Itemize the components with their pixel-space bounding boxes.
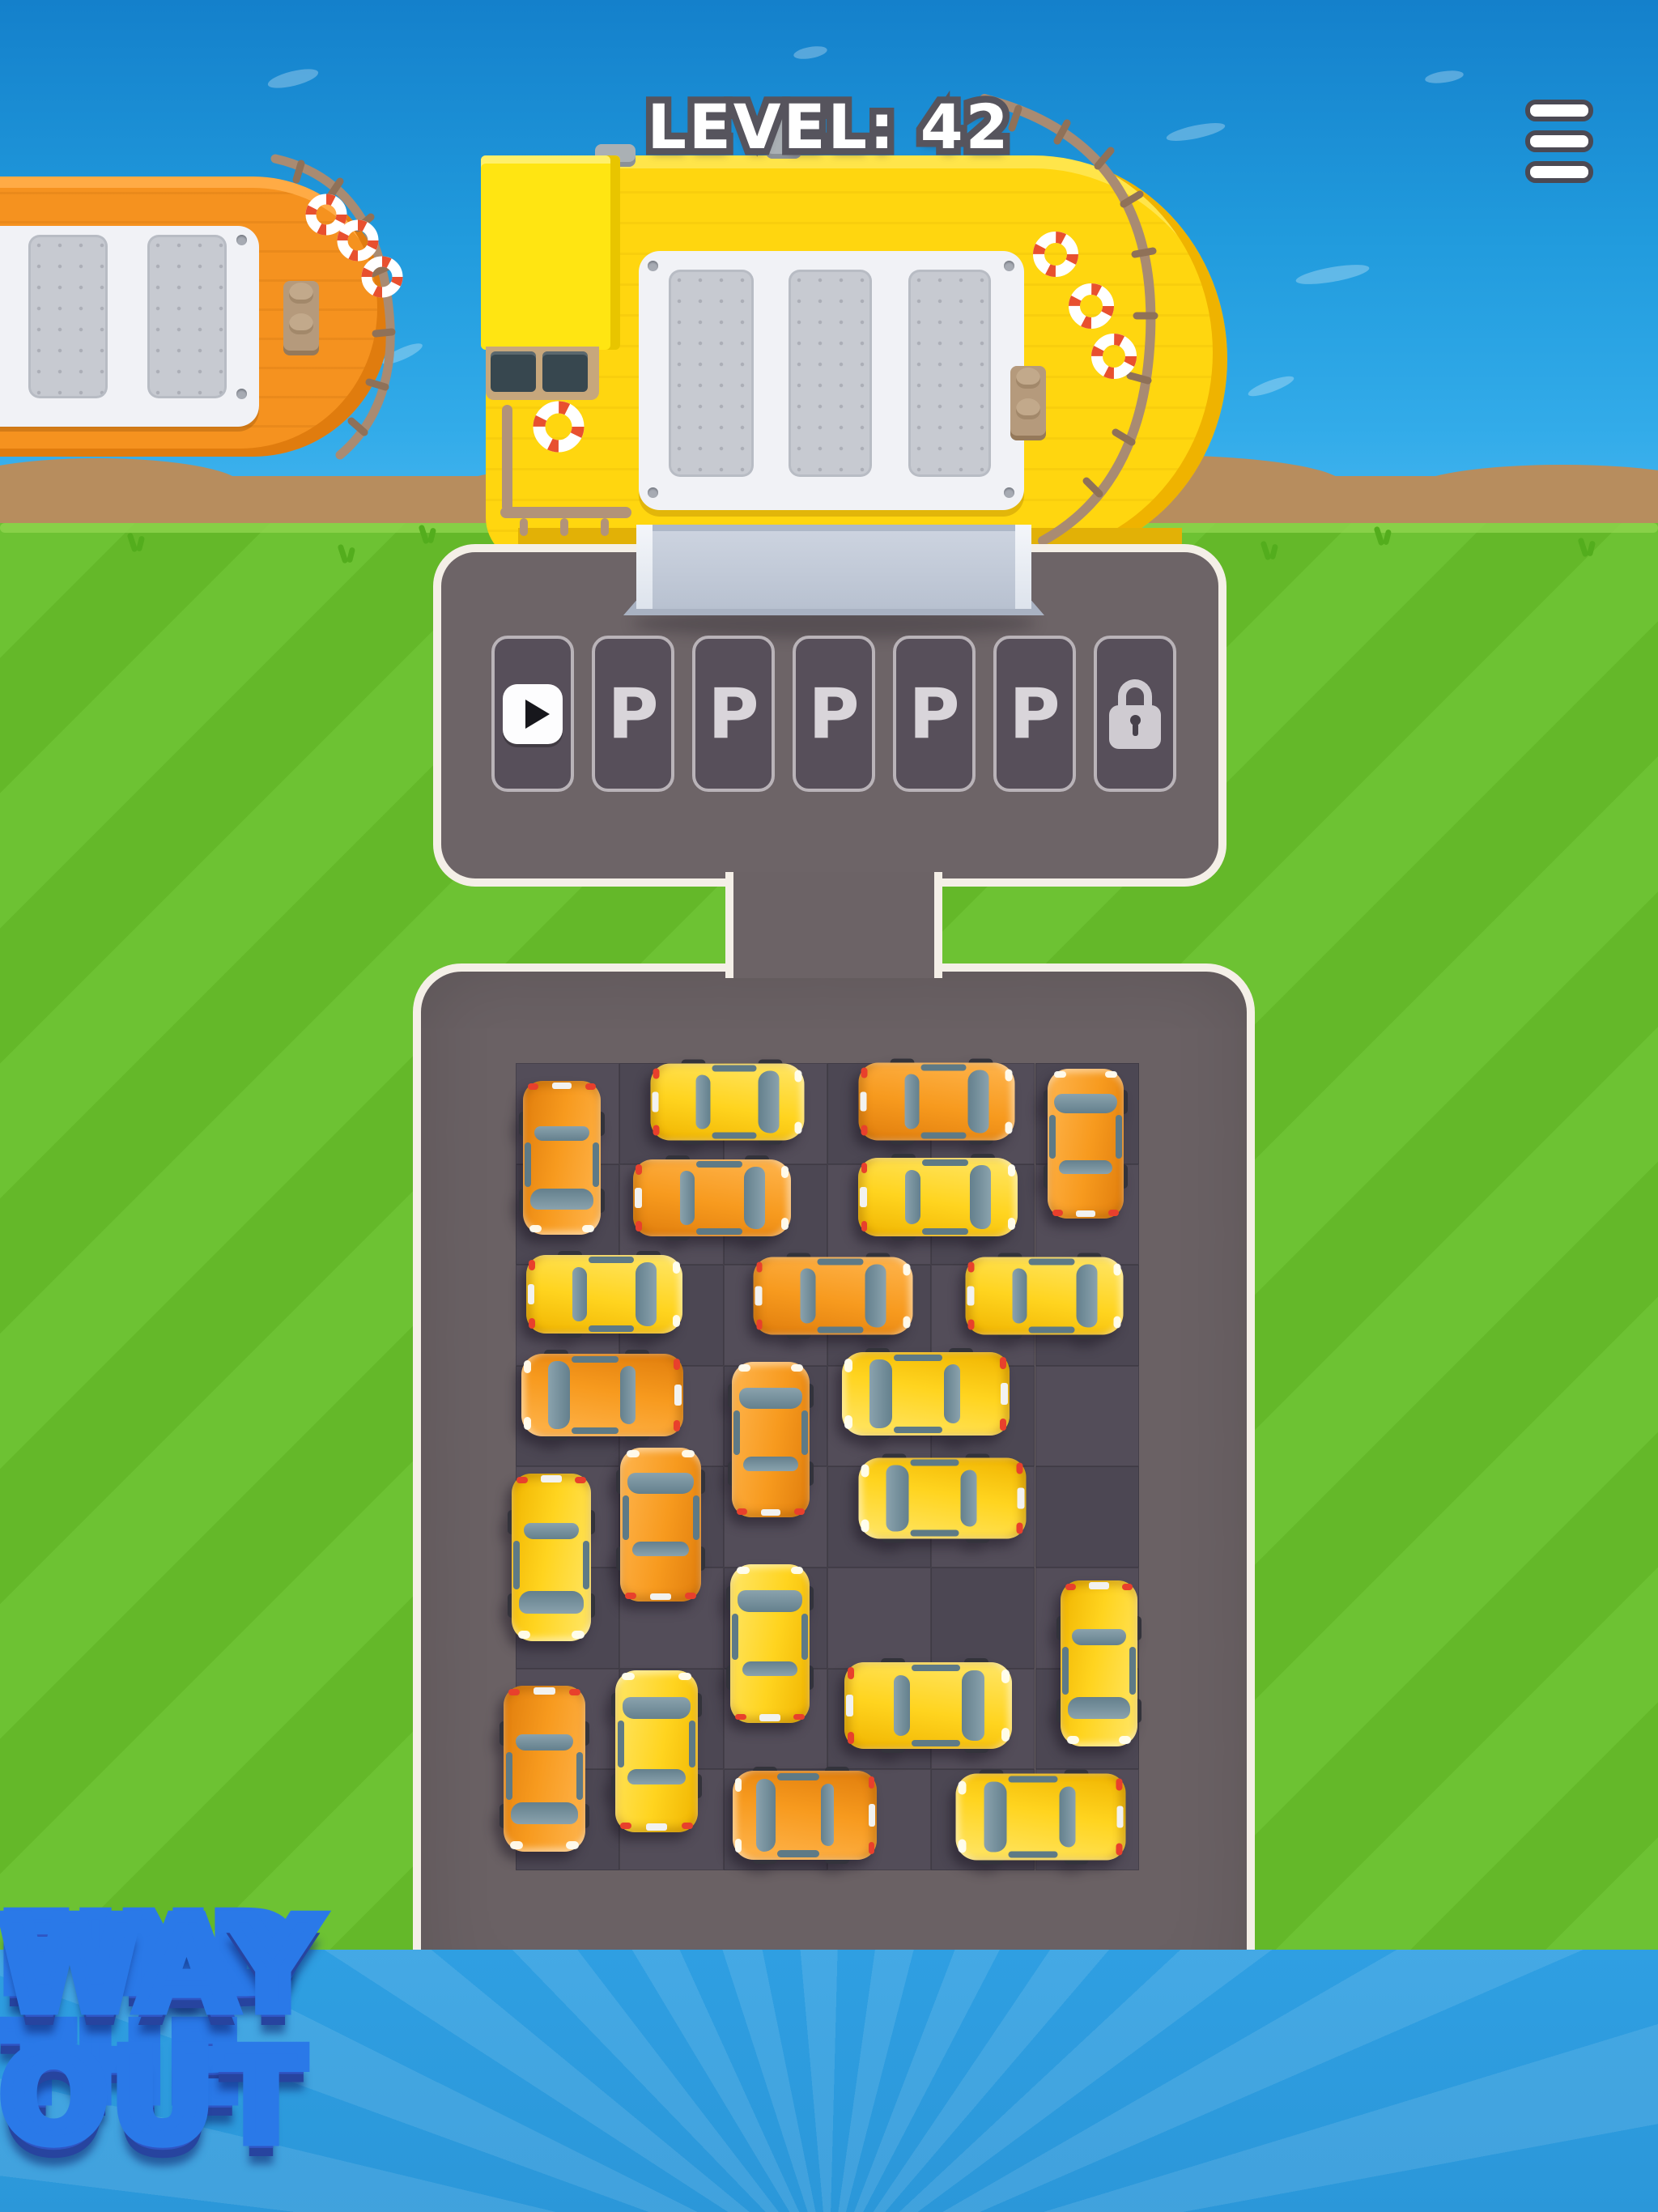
car-body[interactable] — [615, 1670, 698, 1832]
car-orange-right[interactable] — [858, 1062, 1014, 1140]
car-yellow-down[interactable] — [1061, 1580, 1137, 1746]
slot-label: P — [607, 679, 658, 749]
parking-tile — [931, 1568, 1035, 1669]
car-yellow-right[interactable] — [650, 1063, 804, 1140]
car-body[interactable] — [523, 1081, 601, 1235]
car-body[interactable] — [732, 1362, 810, 1517]
car-body[interactable] — [730, 1564, 810, 1723]
car-body[interactable] — [1061, 1580, 1137, 1746]
slot-label: P — [1009, 679, 1060, 749]
game-screen: PPPPP LEVEL: 42 LEVEL: 42 FIND THE FIND … — [0, 0, 1658, 2212]
parking-slot-p[interactable]: P — [793, 636, 875, 792]
car-orange-up[interactable] — [1048, 1069, 1124, 1219]
car-body[interactable] — [521, 1354, 683, 1436]
car-body[interactable] — [504, 1686, 585, 1852]
car-yellow-right[interactable] — [858, 1158, 1018, 1236]
car-yellow-up[interactable] — [615, 1670, 698, 1832]
parking-slot-p[interactable]: P — [893, 636, 976, 792]
lock-icon — [1109, 679, 1161, 749]
parking-tile — [827, 1568, 931, 1669]
car-body[interactable] — [733, 1771, 877, 1860]
car-orange-left[interactable] — [521, 1354, 683, 1436]
car-body[interactable] — [1048, 1069, 1124, 1219]
car-body[interactable] — [842, 1352, 1010, 1436]
car-body[interactable] — [650, 1063, 804, 1140]
slot-label: P — [708, 679, 759, 749]
slot-label: P — [808, 679, 859, 749]
parking-slot-play[interactable] — [491, 636, 574, 792]
car-yellow-left[interactable] — [955, 1773, 1125, 1860]
parking-tile — [1035, 1366, 1139, 1467]
level-title-text: LEVEL: 42 — [0, 91, 1658, 163]
car-orange-right[interactable] — [633, 1159, 791, 1236]
car-body[interactable] — [620, 1448, 701, 1602]
car-yellow-right[interactable] — [844, 1662, 1012, 1749]
level-title: LEVEL: 42 LEVEL: 42 — [0, 91, 1658, 180]
car-body[interactable] — [858, 1158, 1018, 1236]
car-yellow-left[interactable] — [858, 1457, 1026, 1538]
car-orange-up[interactable] — [732, 1362, 810, 1517]
car-body[interactable] — [955, 1773, 1125, 1860]
slot-label: P — [908, 679, 959, 749]
life-preserver-icon — [311, 199, 1131, 446]
boarding-ramp — [636, 525, 1031, 609]
car-body[interactable] — [858, 1062, 1014, 1140]
play-icon[interactable] — [503, 684, 563, 744]
car-orange-up[interactable] — [620, 1448, 701, 1602]
car-body[interactable] — [844, 1662, 1012, 1749]
car-body[interactable] — [858, 1457, 1026, 1538]
car-orange-down[interactable] — [504, 1686, 585, 1852]
car-body[interactable] — [633, 1159, 791, 1236]
parking-slot-lock[interactable] — [1094, 636, 1176, 792]
parking-slot-p[interactable]: P — [592, 636, 674, 792]
parking-slot-p[interactable]: P — [692, 636, 775, 792]
car-orange-left[interactable] — [733, 1771, 877, 1860]
hamburger-menu-button[interactable] — [1525, 100, 1593, 184]
car-yellow-right[interactable] — [965, 1257, 1123, 1334]
car-orange-down[interactable] — [523, 1081, 601, 1235]
parking-tile — [1035, 1466, 1139, 1568]
car-body[interactable] — [965, 1257, 1123, 1334]
lot-connector — [725, 872, 942, 978]
car-yellow-down[interactable] — [512, 1474, 591, 1641]
car-body[interactable] — [526, 1255, 682, 1334]
parking-slot-p[interactable]: P — [993, 636, 1076, 792]
car-yellow-right[interactable] — [526, 1255, 682, 1334]
car-yellow-left[interactable] — [842, 1352, 1010, 1436]
car-body[interactable] — [753, 1257, 912, 1334]
car-orange-right[interactable] — [753, 1257, 912, 1334]
car-body[interactable] — [512, 1474, 591, 1641]
car-yellow-up[interactable] — [730, 1564, 810, 1723]
